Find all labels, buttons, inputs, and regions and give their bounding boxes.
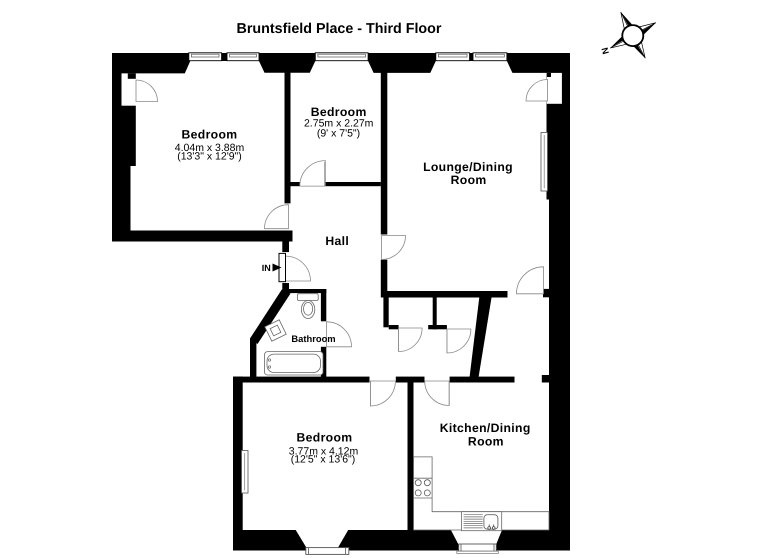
svg-text:Hall: Hall: [325, 234, 349, 248]
svg-text:IN: IN: [262, 263, 271, 273]
svg-text:Kitchen/Dining: Kitchen/Dining: [440, 421, 531, 435]
svg-text:Room: Room: [451, 173, 487, 187]
svg-text:Bruntsfield Place - Third Floo: Bruntsfield Place - Third Floor: [237, 21, 442, 37]
svg-text:(9' x 7'5"): (9' x 7'5"): [317, 128, 360, 140]
svg-text:Lounge/Dining: Lounge/Dining: [423, 160, 513, 174]
svg-text:(13'3" x 12'9"): (13'3" x 12'9"): [177, 150, 242, 162]
svg-text:Bedroom: Bedroom: [182, 127, 238, 141]
svg-text:Bedroom: Bedroom: [297, 431, 353, 445]
svg-text:(12'5" x 13'6"): (12'5" x 13'6"): [291, 454, 356, 466]
svg-text:Room: Room: [468, 435, 504, 449]
svg-text:Bathroom: Bathroom: [291, 333, 335, 344]
